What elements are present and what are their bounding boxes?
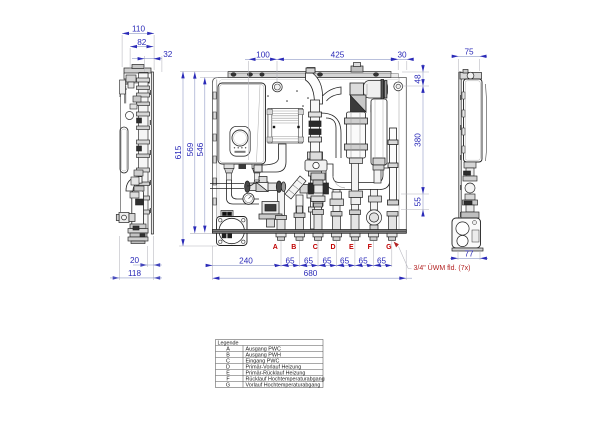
svg-text:546: 546 — [196, 142, 205, 156]
svg-text:65: 65 — [359, 256, 369, 265]
svg-text:425: 425 — [331, 51, 345, 60]
svg-text:3/4" ÜWM fld. (7x): 3/4" ÜWM fld. (7x) — [414, 264, 471, 272]
svg-text:380: 380 — [414, 133, 423, 147]
svg-text:48: 48 — [414, 74, 423, 84]
svg-text:77: 77 — [464, 249, 474, 258]
svg-text:569: 569 — [186, 142, 195, 156]
svg-text:100: 100 — [256, 51, 270, 60]
svg-text:G: G — [226, 382, 230, 388]
svg-text:118: 118 — [128, 269, 141, 278]
svg-text:C: C — [313, 244, 318, 251]
svg-text:615: 615 — [174, 145, 183, 159]
svg-text:Vorlauf Hochtemperaturabgang: Vorlauf Hochtemperaturabgang — [246, 382, 321, 388]
svg-text:G: G — [386, 244, 392, 251]
svg-text:30: 30 — [397, 51, 407, 60]
svg-text:240: 240 — [239, 256, 253, 265]
svg-text:65: 65 — [322, 256, 332, 265]
svg-text:55: 55 — [414, 197, 423, 207]
svg-text:32: 32 — [163, 50, 173, 59]
svg-text:F: F — [368, 244, 373, 251]
svg-text:680: 680 — [304, 269, 318, 278]
svg-text:D: D — [330, 244, 335, 251]
svg-text:75: 75 — [464, 47, 474, 56]
svg-text:E: E — [349, 244, 354, 251]
svg-text:20: 20 — [130, 256, 140, 265]
svg-text:82: 82 — [137, 38, 147, 47]
svg-text:A: A — [273, 244, 278, 251]
svg-text:65: 65 — [377, 256, 387, 265]
svg-text:B: B — [291, 244, 296, 251]
svg-text:65: 65 — [340, 256, 350, 265]
svg-text:110: 110 — [132, 25, 145, 34]
svg-text:65: 65 — [304, 256, 314, 265]
svg-text:65: 65 — [285, 256, 295, 265]
